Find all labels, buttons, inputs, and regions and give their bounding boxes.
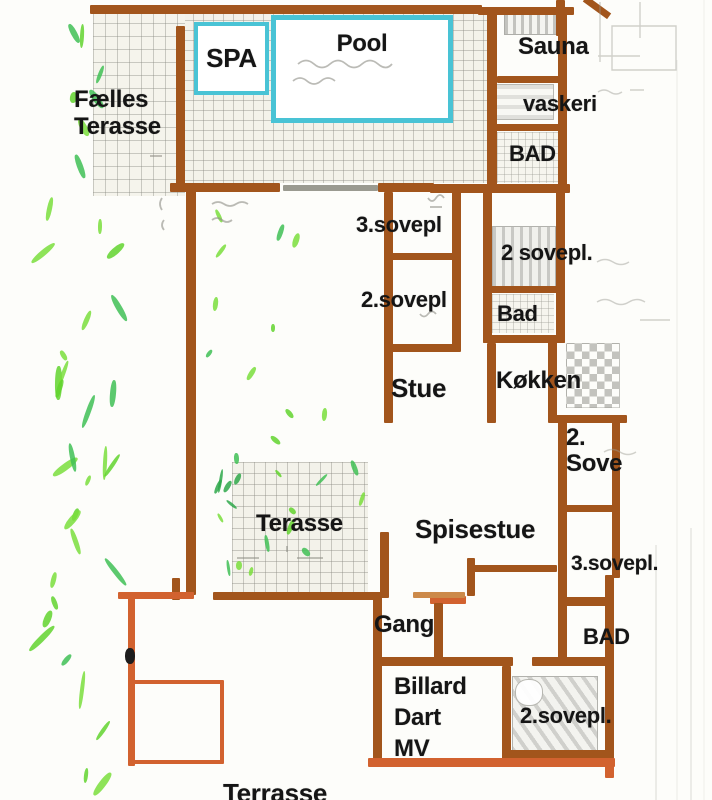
- plant-mark: [105, 241, 126, 261]
- wall-segment: [378, 183, 434, 192]
- plant-mark: [95, 720, 112, 741]
- plant-mark: [225, 560, 230, 577]
- plant-mark: [109, 380, 117, 407]
- plant-mark: [97, 219, 101, 234]
- note-scribble: [212, 202, 248, 206]
- margin-scribble: [598, 90, 644, 94]
- wall-segment: [452, 192, 461, 351]
- label-2sovepl-low: 2.sovepl.: [520, 703, 611, 729]
- plant-mark: [80, 310, 93, 331]
- room-spa: SPA: [194, 22, 269, 95]
- wall-segment: [563, 597, 610, 606]
- wall-segment: [176, 26, 185, 190]
- wall-segment: [384, 253, 461, 260]
- plant-mark: [45, 197, 55, 221]
- wall-segment: [487, 7, 497, 193]
- plant-mark: [284, 407, 295, 419]
- wall-segment: [430, 184, 570, 193]
- plant-mark: [270, 434, 283, 446]
- label-bad-top: BAD: [509, 141, 556, 167]
- wall-segment: [467, 558, 475, 596]
- label-faelles-terasse: Fælles Terasse: [74, 86, 161, 140]
- margin-scribble: [597, 300, 645, 305]
- plant-mark: [212, 297, 219, 312]
- wall-segment: [487, 124, 565, 131]
- label-stue: Stue: [391, 373, 446, 404]
- wall-segment: [605, 575, 614, 767]
- wall-segment: [556, 190, 565, 343]
- gate-wall-stub: [583, 0, 611, 19]
- plant-mark: [29, 241, 56, 265]
- note-scribble: [160, 198, 164, 230]
- plant-mark: [275, 224, 285, 241]
- plant-mark: [68, 528, 81, 555]
- margin-pencil-rect: [612, 26, 676, 70]
- wall-segment: [467, 565, 557, 572]
- label-vaskeri: vaskeri: [523, 91, 597, 117]
- door-mark: [125, 648, 135, 664]
- label-3sovepl-mid: 3.sovepl: [356, 212, 442, 238]
- plant-mark: [59, 349, 69, 361]
- label-terasse-mid: Terasse: [256, 510, 343, 538]
- plant-mark: [77, 670, 86, 708]
- plant-mark: [235, 560, 242, 569]
- plant-mark: [49, 596, 58, 610]
- wall-segment: [213, 592, 381, 600]
- wall-segment: [413, 592, 465, 598]
- label-spa: SPA: [206, 43, 257, 74]
- label-spisestue: Spisestue: [415, 514, 535, 545]
- plant-mark: [291, 232, 302, 248]
- label-bad-right: Bad: [497, 301, 538, 327]
- plant-mark: [27, 624, 56, 653]
- label-billard: Billard Dart MV: [394, 671, 467, 764]
- plant-mark: [60, 653, 73, 667]
- wall-segment: [560, 505, 618, 512]
- wall-segment: [497, 76, 563, 83]
- wall-segment: [128, 598, 135, 766]
- terrace-planter-outline: [130, 680, 224, 764]
- sauna-bench-sketch: [504, 13, 558, 35]
- wall-segment: [487, 343, 496, 423]
- label-koekken: Køkken: [496, 367, 581, 395]
- margin-scribble: [597, 260, 629, 265]
- label-2sovepl-mid: 2.sovepl: [361, 287, 447, 313]
- label-2sove: 2. Sove: [566, 425, 622, 477]
- wall-segment: [483, 286, 565, 293]
- plant-mark: [204, 349, 213, 359]
- wall-segment: [532, 657, 610, 666]
- label-bad-low: BAD: [583, 624, 630, 650]
- label-pool: Pool: [337, 30, 388, 58]
- plant-mark: [79, 24, 84, 48]
- plant-mark: [271, 324, 275, 332]
- plant-mark: [222, 479, 233, 493]
- wall-segment: [434, 603, 443, 660]
- plant-mark: [49, 572, 57, 588]
- plant-mark: [234, 453, 239, 465]
- plant-mark: [246, 366, 258, 381]
- plant-mark: [73, 154, 87, 179]
- plant-mark: [91, 771, 113, 797]
- plant-mark: [216, 513, 224, 523]
- wall-segment: [90, 5, 482, 14]
- wall-segment: [380, 532, 389, 598]
- wall-segment: [283, 185, 378, 191]
- plant-mark: [103, 557, 128, 586]
- wardrobe-scribble: [428, 195, 444, 207]
- label-3sovepl-low: 3.sovepl.: [571, 552, 658, 576]
- plant-mark: [84, 475, 92, 487]
- plant-mark: [109, 293, 129, 322]
- room-pool: Pool: [271, 15, 453, 123]
- label-sauna: Sauna: [518, 33, 589, 61]
- label-gang: Gang: [374, 611, 434, 639]
- wall-segment: [384, 344, 461, 352]
- wall-segment: [186, 183, 196, 595]
- wall-segment: [483, 190, 492, 343]
- wall-segment: [605, 764, 614, 778]
- floor-plan: SPA Pool: [0, 0, 712, 800]
- wall-segment: [502, 666, 511, 758]
- plant-mark: [214, 243, 227, 258]
- plant-mark: [83, 768, 89, 783]
- plant-mark: [322, 408, 328, 421]
- label-terrasse-bottom: Terrasse: [223, 778, 327, 800]
- label-2sovepl-right: 2 sovepl.: [501, 240, 592, 266]
- plant-mark: [80, 394, 97, 428]
- wall-segment: [373, 657, 513, 666]
- pillow-sketch: [515, 679, 543, 706]
- plant-mark: [214, 209, 223, 224]
